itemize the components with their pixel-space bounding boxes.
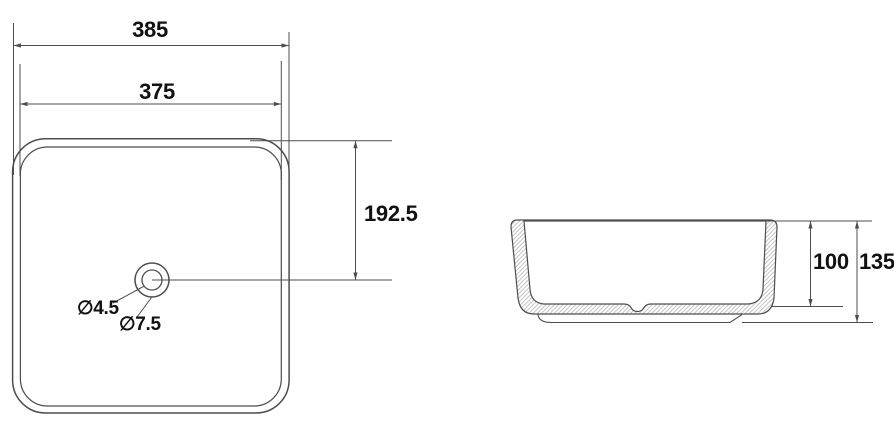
top-view-dimensions (14, 23, 393, 319)
dim-inner-depth-label: 100 (813, 251, 849, 273)
basin-inner-rim (20, 147, 281, 406)
dim-inner-width-label: 375 (131, 81, 183, 103)
dim-drain-large-label: ∅7.5 (119, 315, 161, 334)
top-view-drawing (13, 139, 290, 413)
basin-section-shell (511, 220, 777, 314)
drawing-linework (0, 0, 894, 423)
side-view-drawing (511, 220, 777, 323)
technical-drawing-canvas: 385 375 192.5 ∅4.5 ∅7.5 100 135 (0, 0, 894, 423)
basin-foot (538, 315, 742, 323)
dim-drain-small-label: ∅4.5 (77, 299, 119, 318)
basin-outer-rim (13, 139, 290, 413)
dim-center-offset-label: 192.5 (364, 203, 418, 225)
dim-overall-height-label: 135 (859, 251, 894, 273)
dim-outer-width-label: 385 (124, 19, 176, 41)
